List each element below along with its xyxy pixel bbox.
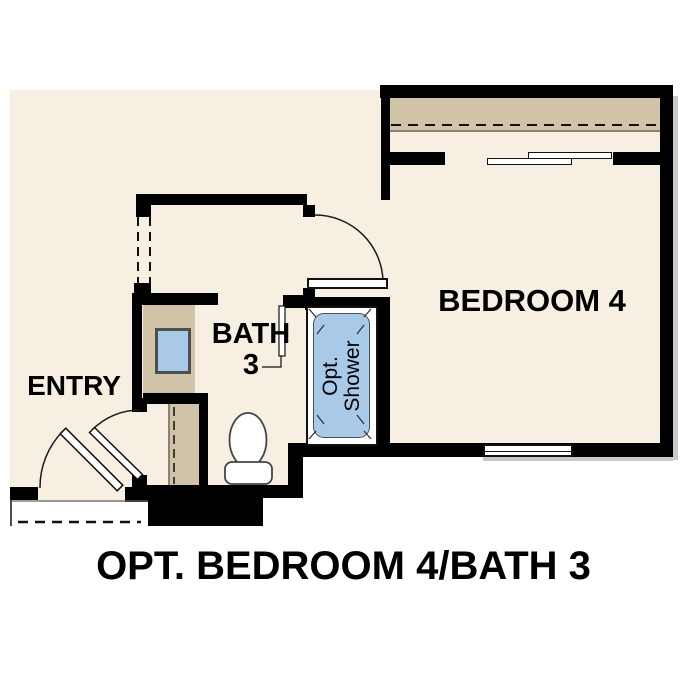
bath-bottom-wall <box>140 485 303 498</box>
bath-front-wall-left <box>134 293 218 305</box>
bedroom-right-wall <box>660 85 673 457</box>
entry-label: ENTRY <box>24 371 124 400</box>
plan-title: OPT. BEDROOM 4/BATH 3 <box>0 544 687 589</box>
shower-label-line2: Shower <box>341 340 364 411</box>
wall-shadow-bottom <box>483 457 673 461</box>
bath-bottom-wall-mass <box>148 498 263 526</box>
entry-label-text: ENTRY <box>27 370 121 401</box>
entry-bottom-wall <box>10 487 38 500</box>
bath-label: BATH 3 <box>203 319 299 381</box>
closet-bypass-door-front <box>487 158 572 165</box>
hall-top-wall-stub-right <box>303 205 315 217</box>
entry-bath-floor-lower <box>10 443 290 487</box>
bath-label-line1: BATH <box>212 318 290 350</box>
shower-label-line1: Opt. <box>319 356 342 396</box>
floor-plan: BEDROOM 4 BATH 3 ENTRY Opt. Shower OPT. … <box>0 0 687 687</box>
bedroom-top-wall <box>380 85 673 98</box>
entry-door-stub-top <box>132 398 147 412</box>
wall-shadow-right <box>673 96 678 460</box>
vanity-left-wall <box>132 293 142 405</box>
bedroom-window <box>483 444 573 457</box>
vanity-sink <box>155 328 191 374</box>
closet-bypass-door-back <box>528 152 612 159</box>
hall-top-wall-stub-left <box>136 205 151 217</box>
closet-shelf-band <box>388 98 662 132</box>
hall-top-wall <box>136 194 307 205</box>
plan-title-text: OPT. BEDROOM 4/BATH 3 <box>96 544 591 588</box>
shower-label: Opt. Shower <box>320 316 364 436</box>
bedroom-floor <box>380 85 673 457</box>
bedroom-label-text: BEDROOM 4 <box>438 283 626 318</box>
bedroom-label: BEDROOM 4 <box>420 285 644 318</box>
bedroom-left-wall-upper <box>381 90 390 200</box>
closet-front-wall-left <box>388 152 445 165</box>
window-mullion <box>485 451 571 453</box>
entry-threshold <box>38 487 125 502</box>
wall-chase <box>168 404 199 485</box>
closet-front-wall-right <box>613 152 662 165</box>
bath-label-line2: 3 <box>243 349 259 381</box>
toilet-left-wall <box>198 393 208 485</box>
